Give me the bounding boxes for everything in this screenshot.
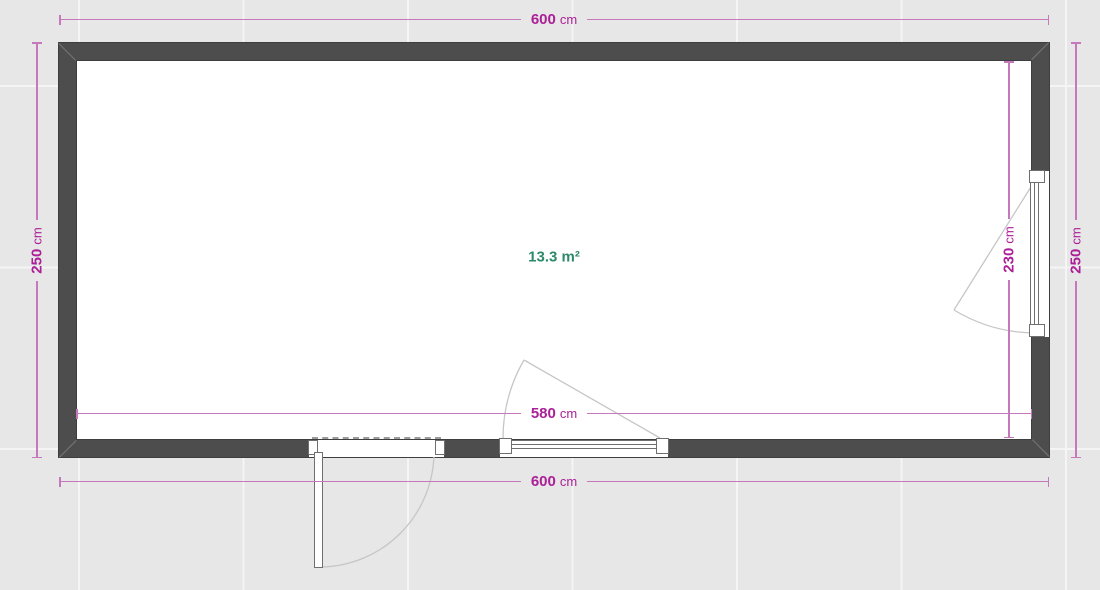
window-bottom-frame-left	[499, 438, 512, 454]
dimension-left-label[interactable]: 250cm	[30, 227, 45, 273]
window-right-frame-bottom	[1029, 324, 1045, 337]
dimension-top-label[interactable]: 600cm	[531, 12, 577, 27]
dimension-left: 250cm	[30, 42, 45, 458]
door-leaf[interactable]	[314, 452, 323, 568]
area-label[interactable]: 13.3 m²	[528, 249, 580, 266]
door-swing-arc	[321, 452, 434, 567]
dimension-top: 600cm	[59, 12, 1049, 27]
dimension-right-inner: 230cm	[1002, 61, 1017, 438]
window-bottom-frame-right	[656, 438, 669, 454]
door-opening	[309, 440, 444, 457]
dimension-right-outer-label[interactable]: 250cm	[1069, 227, 1084, 273]
dimension-right-inner-label[interactable]: 230cm	[1002, 226, 1017, 272]
window-bottom-glazing[interactable]	[511, 440, 657, 449]
door-opening-dashed-line	[312, 437, 441, 439]
window-right-glazing[interactable]	[1030, 182, 1039, 325]
window-right-frame-top	[1029, 170, 1045, 183]
dimension-right-outer: 250cm	[1069, 42, 1084, 458]
floor-plan-canvas: 600cm 580cm 600cm 250cm 230cm 250cm 13.3…	[0, 0, 1100, 590]
dimension-bottom-label[interactable]: 600cm	[531, 474, 577, 489]
dimension-inner-width: 580cm	[76, 406, 1032, 421]
dimension-bottom: 600cm	[59, 474, 1049, 489]
dimension-inner-width-label[interactable]: 580cm	[531, 406, 577, 421]
door-jamb-right	[435, 440, 445, 455]
